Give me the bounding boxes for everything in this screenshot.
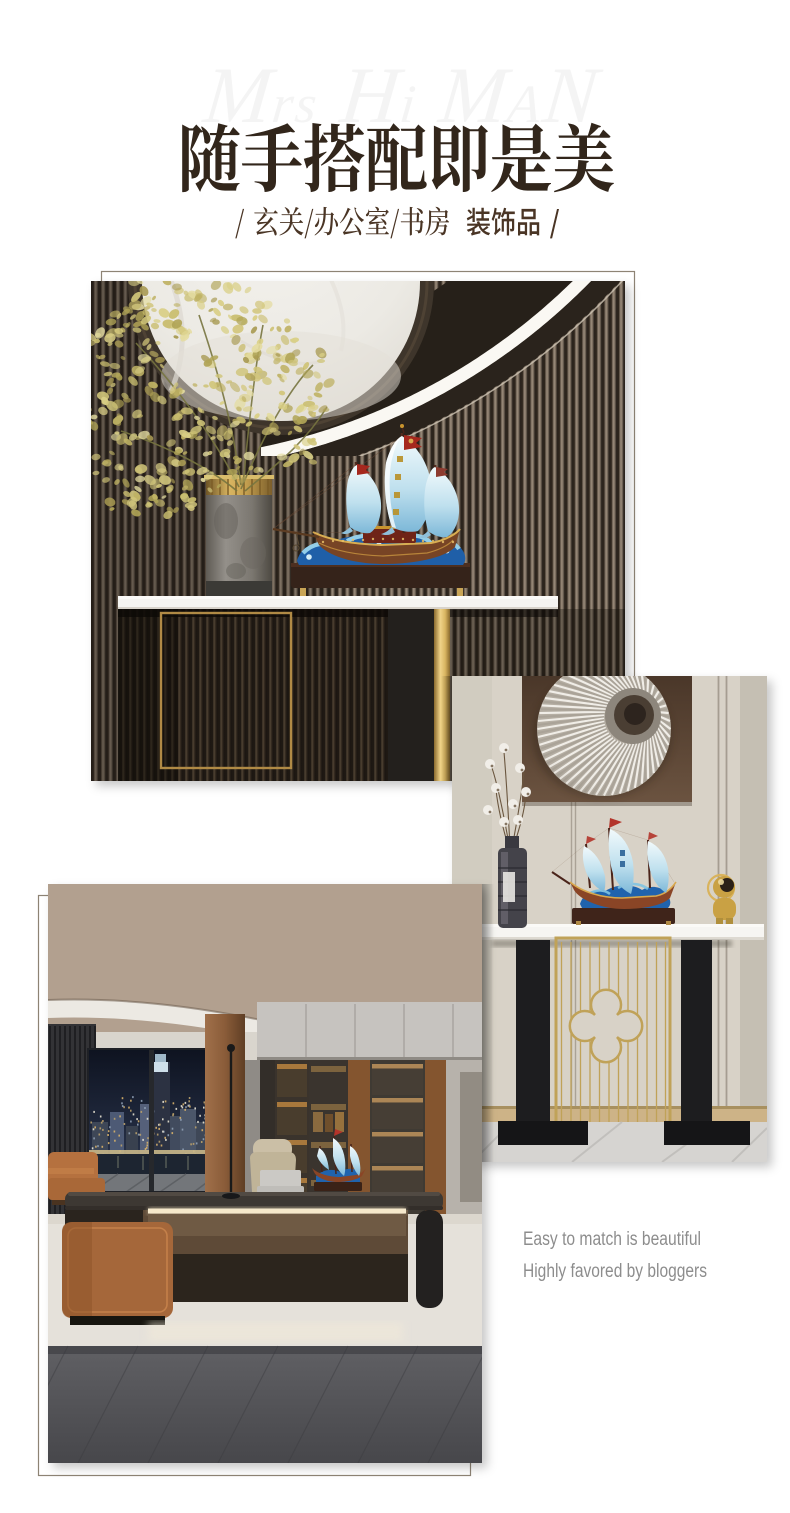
svg-text:Easy to match is beautiful: Easy to match is beautiful <box>523 1229 701 1250</box>
svg-text:Highly favored by bloggers: Highly favored by bloggers <box>523 1261 707 1282</box>
